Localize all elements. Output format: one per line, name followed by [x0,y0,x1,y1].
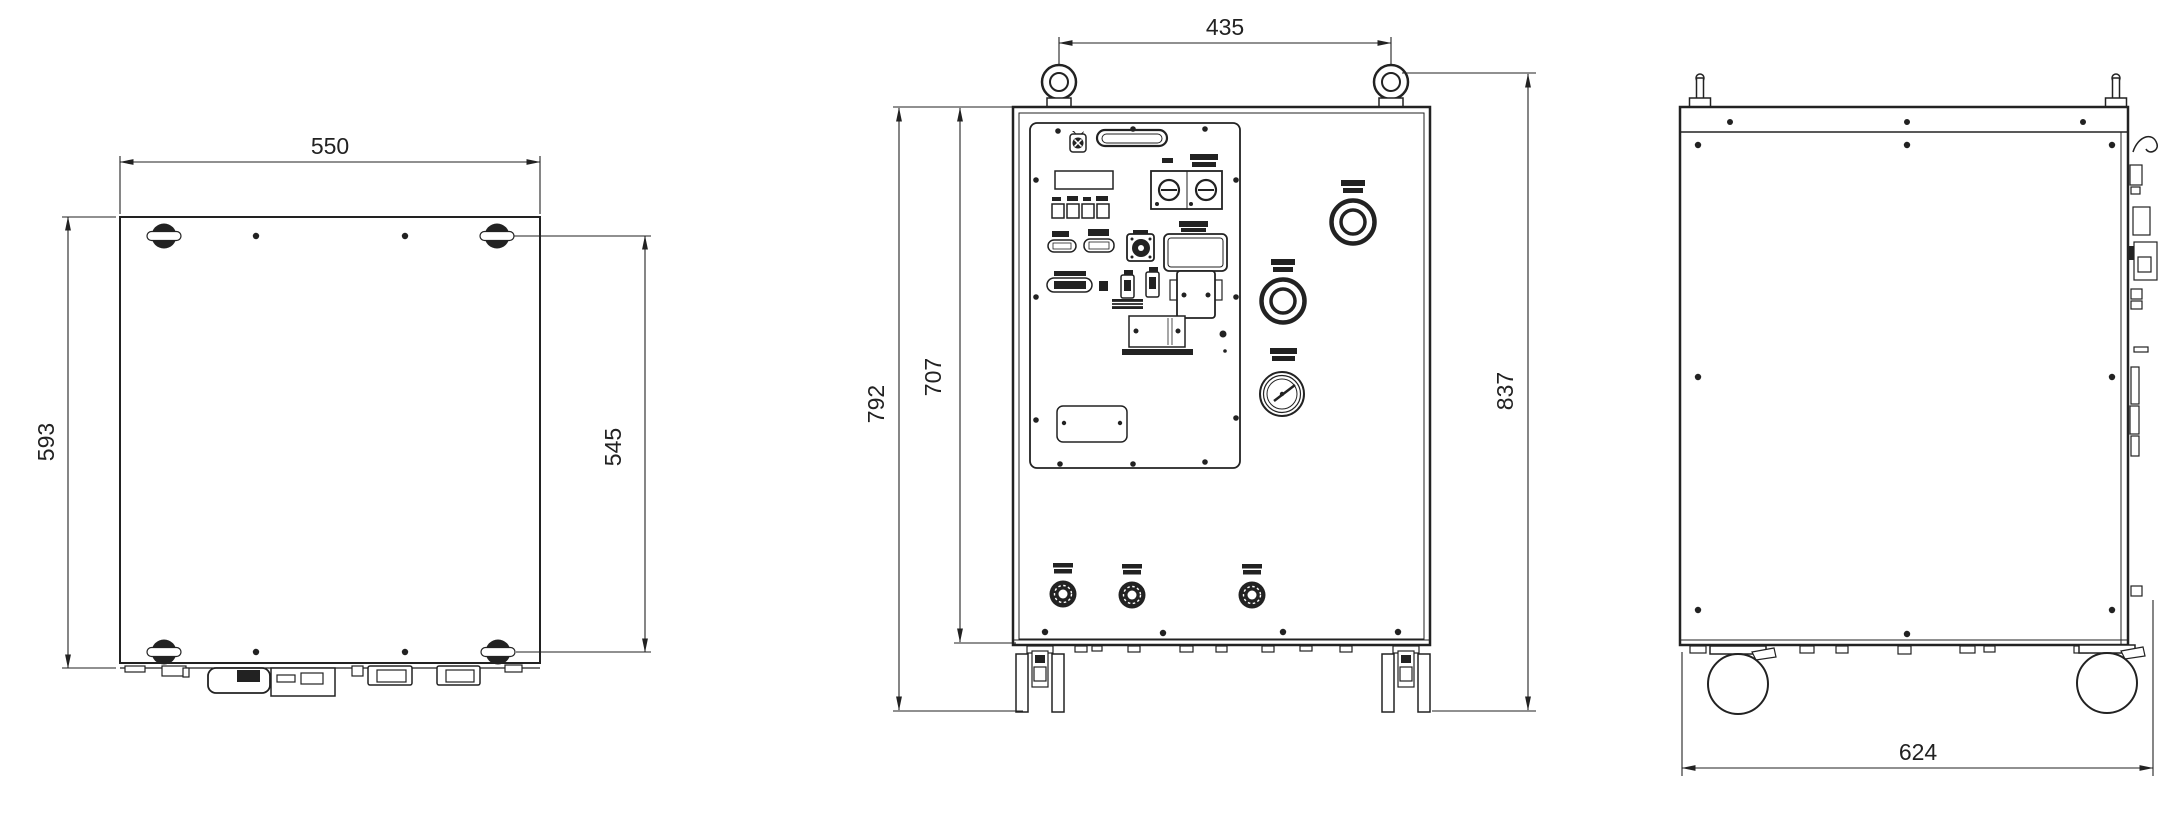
top-hole [402,233,408,239]
dim-height-with-casters: 792 [863,107,1023,711]
top-view-front-edge-features [125,665,522,696]
handle-side-icon [2133,137,2157,152]
side-protrusions [2129,137,2157,596]
display-window [1055,171,1113,189]
dim-label-435: 435 [1206,14,1244,40]
dim-label-792: 792 [863,385,889,423]
top-hole [253,233,259,239]
top-hole [253,649,259,655]
top-view-outline [120,217,540,663]
round-panel-connector-icon [1127,230,1154,261]
relay-module [1122,316,1193,355]
panel-hole [1223,349,1227,353]
front-view: 435 792 707 837 [863,14,1536,712]
side-view: 624 [1680,74,2157,776]
striped-terminal-bar [1112,299,1143,309]
button [1067,204,1079,218]
eyebolt-pin-right-icon [2106,74,2127,107]
front-bottom-tabs [1075,646,1352,652]
side-cabinet-outline [1680,107,2128,645]
drawing-canvas: 550 593 545 [0,0,2178,840]
button [1082,204,1094,218]
small-port [1099,281,1108,291]
front-control-panel [1030,123,1240,468]
caster-front-right-icon [1382,646,1430,712]
dim-label-624: 624 [1899,739,1938,765]
dim-top-width: 550 [120,133,540,214]
dim-label-545: 545 [600,428,626,466]
dim-label-550: 550 [311,133,349,159]
eyebolt-pin-left-icon [1690,74,1711,107]
caster-side-left-icon [1708,646,1776,714]
lifting-eye-right-icon [1374,65,1408,107]
lifting-eye-left-icon [1042,65,1076,107]
keyswitch-icon [1070,131,1086,152]
dim-body-height: 707 [920,108,1016,643]
dim-top-depth: 593 [33,217,116,668]
top-hole [402,649,408,655]
bottom-cutout [1057,406,1127,442]
panel-screw [1220,331,1227,338]
dim-eyebolt-pitch: 435 [1059,14,1391,66]
caster-side-right-icon [2077,645,2145,713]
dim-label-837: 837 [1492,372,1518,410]
button [1052,204,1064,218]
caster-front-left-icon [1016,646,1064,712]
top-view: 550 593 545 [33,133,651,696]
engineering-drawing: 550 593 545 [0,0,2178,840]
dim-label-593: 593 [33,423,59,461]
button [1097,204,1109,218]
dim-label-707: 707 [920,358,946,396]
